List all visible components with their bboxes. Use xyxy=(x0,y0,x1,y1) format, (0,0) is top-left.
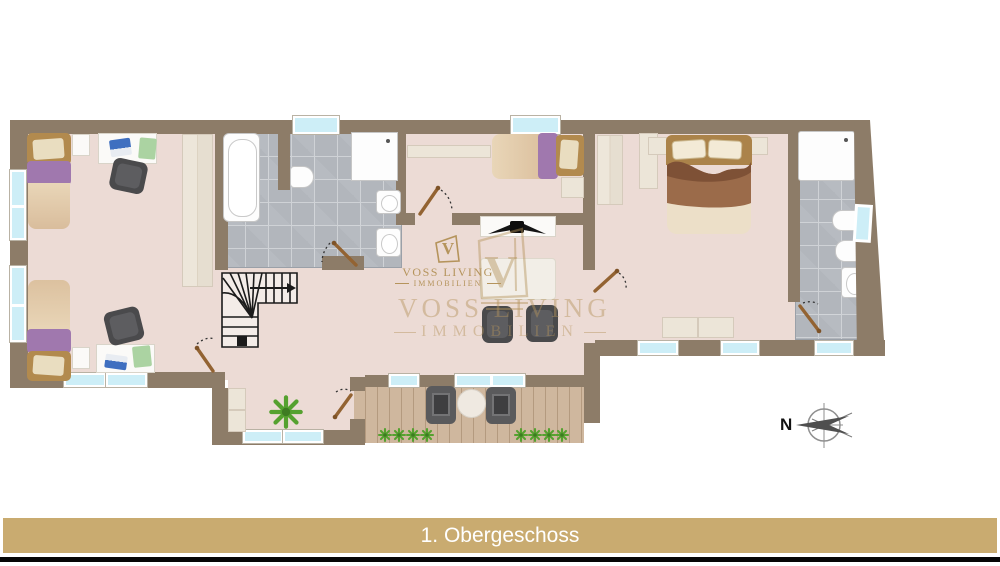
sink xyxy=(376,190,401,214)
laptop xyxy=(104,354,128,371)
office-chair xyxy=(108,157,149,196)
terrace-table xyxy=(457,389,486,418)
notepad xyxy=(138,137,157,159)
terrace-chair xyxy=(486,387,516,424)
window-left-2 xyxy=(10,266,26,342)
hallway-floor xyxy=(215,256,402,380)
wardrobe xyxy=(182,134,213,287)
wall-bathroom-stub xyxy=(278,133,290,190)
nightstand xyxy=(648,137,667,155)
nightstand xyxy=(72,134,90,156)
window-top-1 xyxy=(293,116,339,134)
north-arrow xyxy=(796,416,849,434)
window-hall-1 xyxy=(243,430,283,443)
compass-north-label: N xyxy=(780,415,792,435)
brand-logo-name: VOSS LIVING xyxy=(400,265,496,280)
shower xyxy=(351,132,398,181)
watermark-name: VOSS LIVING xyxy=(398,293,602,324)
footer-divider xyxy=(0,557,1000,562)
wall-terrace-left-lower xyxy=(350,419,365,445)
brand-logo-monogram: V xyxy=(438,239,458,259)
tv-sideboard xyxy=(480,216,556,237)
terrace-door-glass xyxy=(455,374,525,387)
window-hall-2 xyxy=(283,430,323,443)
wardrobe xyxy=(597,135,623,205)
nightstand xyxy=(72,347,90,369)
wall-bathroom-door-stub xyxy=(322,256,364,270)
wall-midbedroom-bottom-a xyxy=(396,213,415,225)
floor-label-banner: 1. Obergeschoss xyxy=(3,518,997,553)
wall-terrace-left-upper xyxy=(350,377,365,391)
watermark-subtitle: IMMOBILIEN xyxy=(398,323,602,341)
window-terrace-small xyxy=(389,374,419,387)
toilet xyxy=(290,166,314,188)
window-bottom-right-1 xyxy=(638,341,678,355)
wardrobe xyxy=(407,145,491,158)
notepad xyxy=(132,345,152,368)
window-bottom-right-3 xyxy=(815,341,853,355)
sink xyxy=(376,228,401,257)
bidet xyxy=(835,240,859,262)
window-bottom-right-2 xyxy=(721,341,759,355)
wall-top xyxy=(10,120,866,134)
terrace-chair xyxy=(426,386,456,424)
toilet xyxy=(832,210,858,231)
nightstand xyxy=(750,137,768,155)
floorplan-page: V VOSS LIVING IMMOBILIEN V VOSS LIVING I… xyxy=(0,0,1000,566)
dresser xyxy=(698,317,734,338)
window-top-2 xyxy=(511,116,560,134)
compass-rose xyxy=(796,403,852,448)
wall-bedroom-divider xyxy=(583,133,595,270)
watermark-monogram: V xyxy=(484,245,518,298)
shower xyxy=(798,131,855,181)
sink xyxy=(841,267,866,298)
cabinet xyxy=(561,177,584,198)
dresser xyxy=(662,317,698,338)
hall-cupboard xyxy=(228,388,246,432)
wall-left xyxy=(10,120,28,388)
brand-logo-subtitle: IMMOBILIEN xyxy=(398,279,498,288)
window-bottom-left-2 xyxy=(106,373,147,387)
window-left-1 xyxy=(10,170,26,240)
bathtub xyxy=(223,133,260,222)
hallway-lower-floor xyxy=(228,380,365,432)
laptop xyxy=(109,138,132,158)
